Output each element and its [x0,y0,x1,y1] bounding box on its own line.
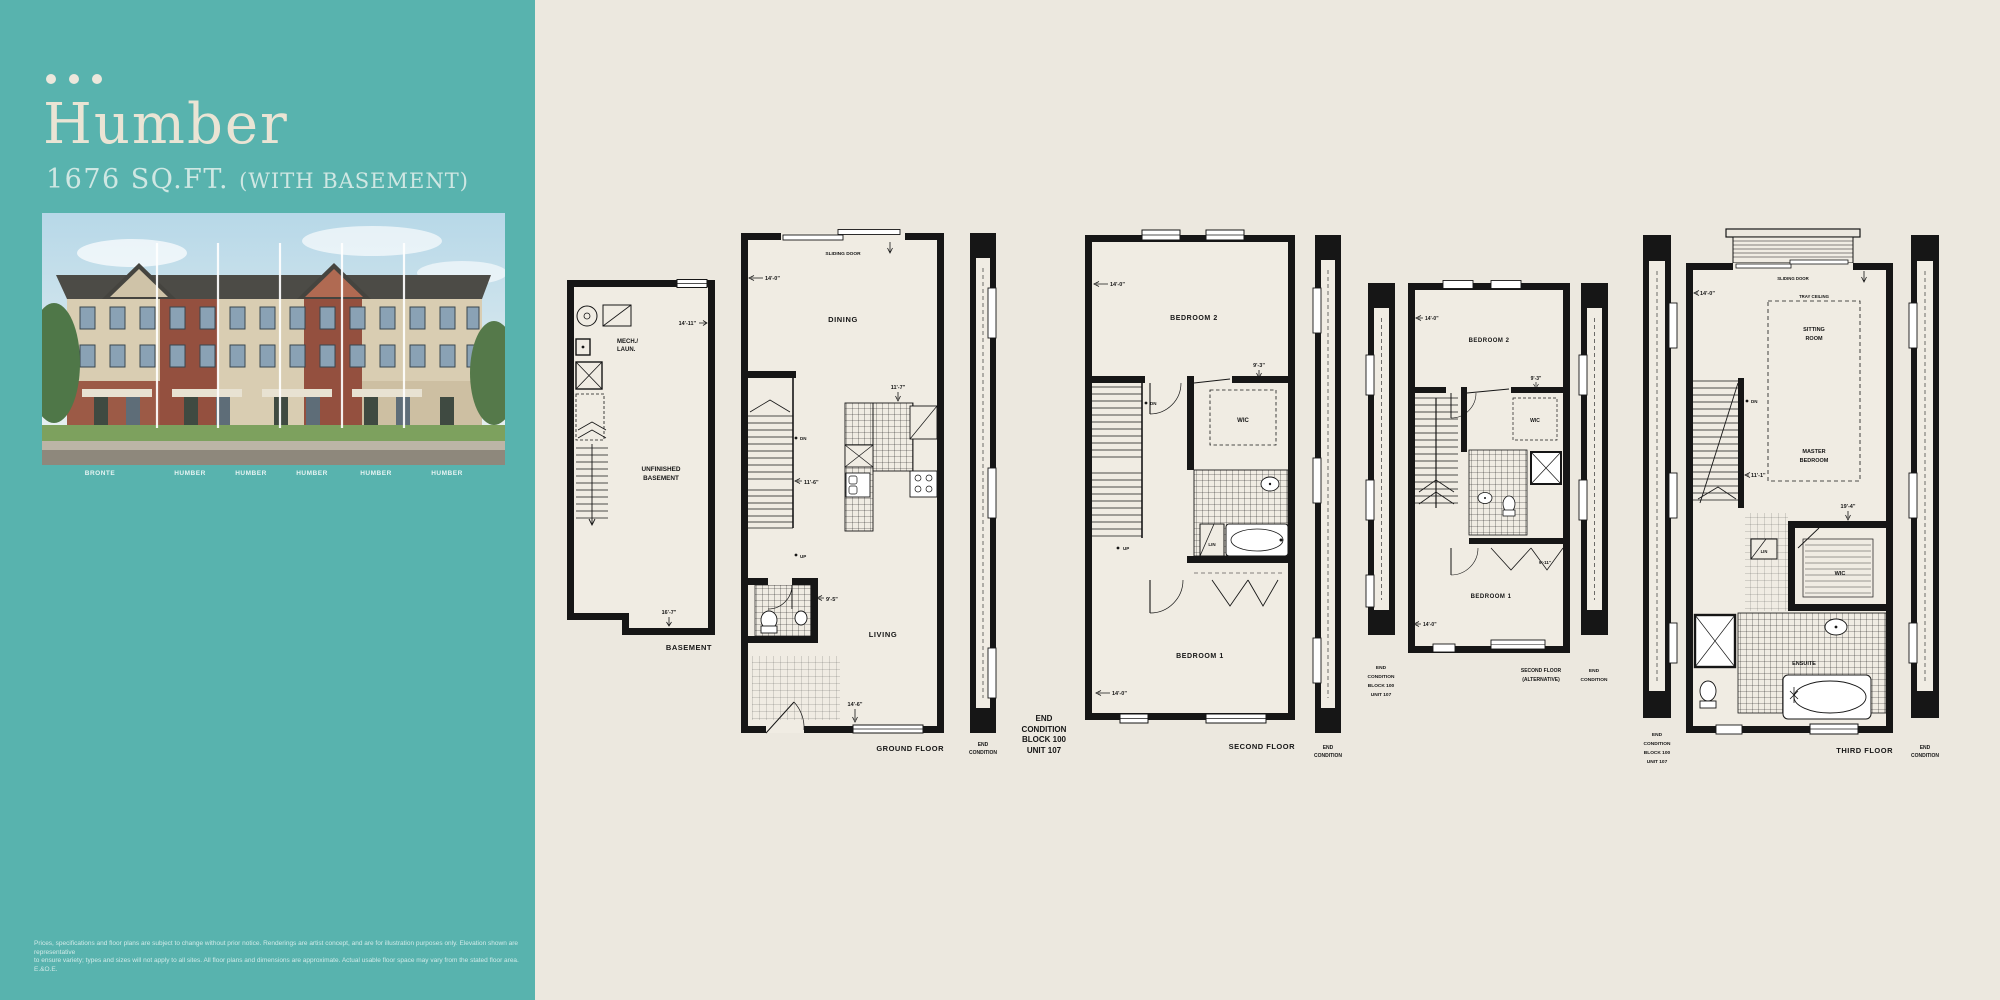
dim-label: 11'-7" [891,385,906,391]
stair-label-dn: DN [800,436,807,441]
unit-note-label: BLOCK 100 [1644,750,1671,756]
closet-label-lin: LIN [1208,542,1215,547]
plan-caption-third: THIRD FLOOR [1836,746,1893,755]
unit-label: HUMBER [174,470,206,477]
unit-note-label: CONDITION [1368,674,1395,680]
tray-ceiling-label: TRAY CEILING [1799,294,1830,299]
end-condition-label: CONDITION [969,750,997,756]
room-label-bedroom1: BEDROOM 1 [1471,594,1512,600]
room-label-wic: WIC [1835,571,1846,577]
dim-label: 19'-4" [1841,504,1856,510]
dim-label: 9'-3" [1253,363,1265,369]
unit-note-label: UNIT 107 [1647,759,1668,765]
plan-caption-second: SECOND FLOOR [1229,742,1296,751]
disclaimer-text: Prices, specifications and floor plans a… [34,940,539,974]
dim-label: 14'-0" [765,276,780,282]
building-rendering [42,213,505,465]
unit-label: HUMBER [360,470,392,477]
sliding-door-label: SLIDING DOOR [1777,276,1809,281]
dim-label: 9'-3" [1531,376,1542,382]
unit-note-label: END [1652,732,1663,738]
unit-note-label: UNIT 107 [1371,692,1392,698]
room-label-unfinished-basement: UNFINISHED [641,466,680,473]
model-title: Humber [43,92,289,157]
unit-note-label: CONDITION [1644,741,1671,747]
unit-note-block100: END CONDITION BLOCK 100 UNIT 107 [1012,714,1076,756]
sqft-text: 1676 SQ.FT. [46,164,229,195]
room-label-living: LIVING [869,630,898,639]
room-label-bedroom2: BEDROOM 2 [1469,338,1510,344]
room-label-sitting: ROOM [1805,336,1823,342]
room-label-bedroom2: BEDROOM 2 [1170,315,1218,322]
plan-caption-second-alt: (ALTERNATIVE) [1522,677,1560,683]
end-condition-label: CONDITION [1314,753,1342,759]
room-label-master: BEDROOM [1800,458,1829,464]
dim-label: 14'-0" [1112,691,1127,697]
stair-label-dn: DN [1150,401,1157,406]
decorative-dots-icon [46,74,102,84]
unit-label: HUMBER [235,470,267,477]
unit-label: HUMBER [431,470,463,477]
floor-plan-second: 14'-0" BEDROOM 2 9'-3" WIC DN UP LIN [1082,228,1354,776]
model-subtitle: 1676 SQ.FT. (WITH BASEMENT) [46,164,469,195]
sliding-door-label: SLIDING DOOR [825,251,861,257]
end-condition-label: END [1323,745,1334,751]
room-label-sitting: SITTING [1803,327,1825,333]
room-label-dining: DINING [828,315,858,324]
room-label-unfinished-basement: BASEMENT [643,475,679,482]
dim-label: 11'-6" [804,480,819,486]
closet-label-lin: LIN [1761,549,1768,554]
unit-label: BRONTE [85,470,115,477]
mech-laun-label: MECH./ [617,339,638,345]
end-condition-label: END [1920,745,1931,751]
stair-label-up: UP [1123,546,1129,551]
room-label-bedroom1: BEDROOM 1 [1176,653,1224,660]
brochure-page: Humber 1676 SQ.FT. (WITH BASEMENT) [0,0,2000,1000]
room-label-wic: WIC [1237,418,1249,424]
unit-label: HUMBER [296,470,328,477]
room-label-ensuite: ENSUITE [1792,661,1816,667]
dim-label: 14'-0" [1423,622,1437,628]
end-condition-label: CONDITION [1911,753,1939,759]
unit-note-label: BLOCK 100 [1368,683,1395,689]
end-condition-label: END [1589,668,1600,674]
room-label-wic: WIC [1530,418,1540,424]
floor-plan-third: END CONDITION BLOCK 100 UNIT 107 SLIDING… [1638,223,1950,783]
dim-label: 14'-0" [1425,316,1439,322]
plan-caption-basement: BASEMENT [666,643,712,652]
stair-label-up: UP [800,554,806,559]
dim-label: 16'-7" [662,610,677,616]
dim-label: 14'-11" [679,321,697,327]
dim-label: 14'-6" [848,702,863,708]
dim-label: 9'-5" [826,597,838,603]
end-condition-label: CONDITION [1581,677,1608,683]
dim-label: 14'-0" [1110,282,1125,288]
basement-note: (WITH BASEMENT) [239,169,469,193]
sidebar: Humber 1676 SQ.FT. (WITH BASEMENT) [0,0,535,1000]
dim-label: 14'-0" [1700,291,1715,297]
room-label-master: MASTER [1802,449,1825,455]
floor-plan-second-alternative: END CONDITION BLOCK 100 UNIT 107 14'-0" … [1363,280,1615,700]
mech-laun-label: LAUN. [617,347,636,353]
plan-caption-ground: GROUND FLOOR [876,744,944,753]
floor-plan-ground: SLIDING DOOR 14'-0" DINING DN UP 11'-6" … [738,228,1010,760]
end-condition-label: END [978,742,989,748]
dim-label: 9'-11" [1539,560,1551,565]
floor-plan-basement: MECH./ LAUN. UNFINISHED BASEMENT 14'-11"… [565,278,717,656]
dim-label: 11'-1" [1751,473,1766,479]
stair-label-dn: DN [1751,399,1758,404]
plan-caption-second-alt: SECOND FLOOR [1521,668,1562,674]
unit-note-label: END [1376,665,1387,671]
